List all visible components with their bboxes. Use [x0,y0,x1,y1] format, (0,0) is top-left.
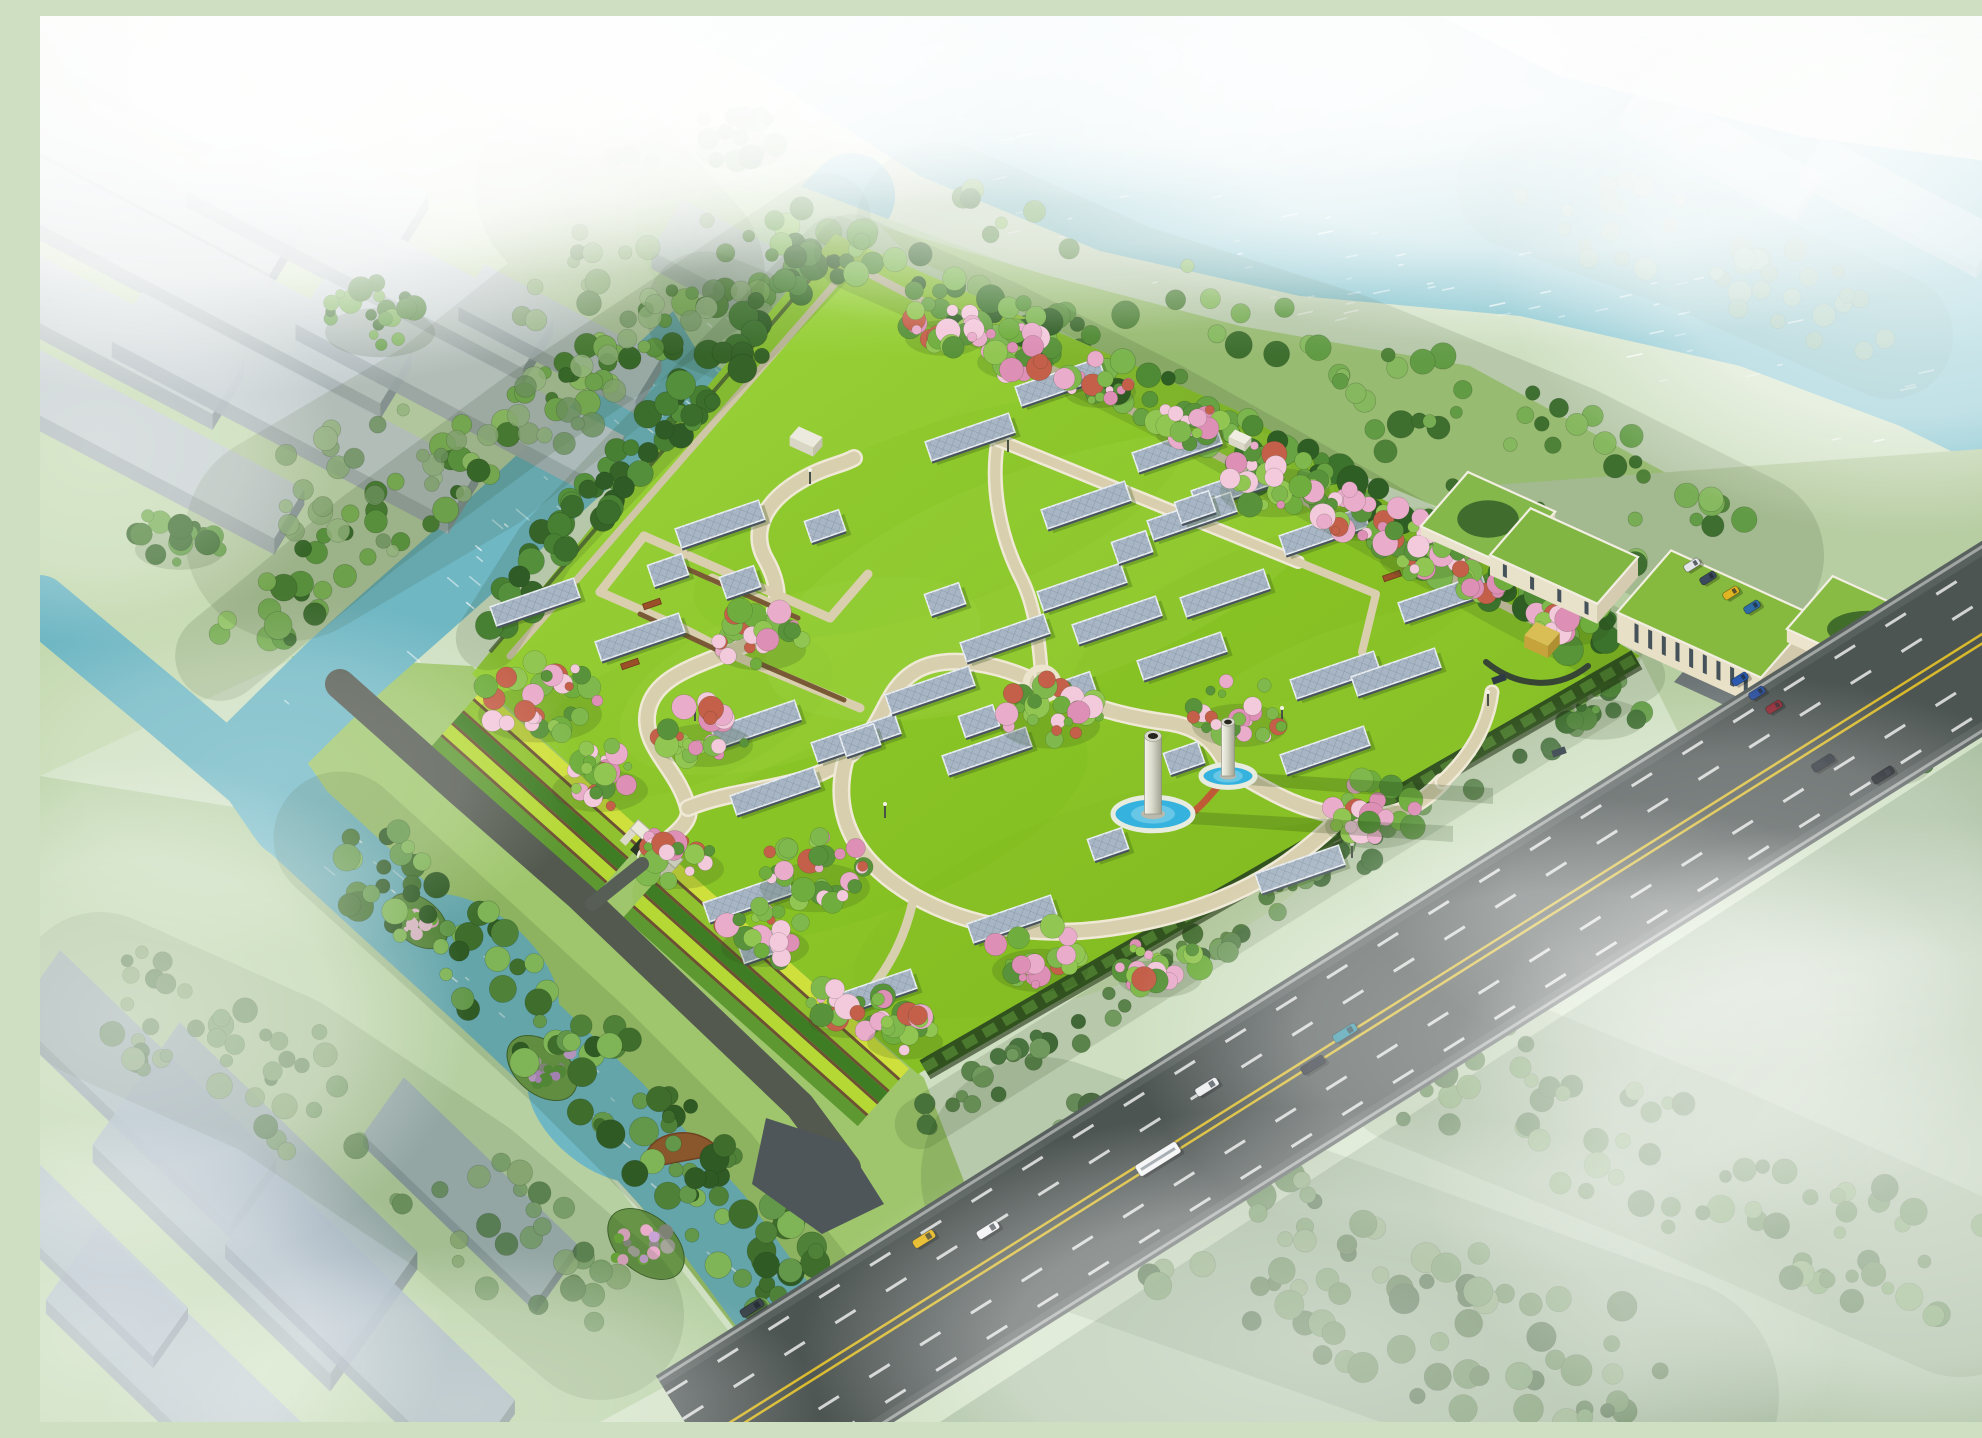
rendering-figure: Aerial rendering of a riverside eco-park… [40,16,1982,1422]
aerial-site-rendering [40,16,1982,1422]
stack-cylinder [1145,736,1162,814]
stack-cylinder [1222,722,1235,776]
